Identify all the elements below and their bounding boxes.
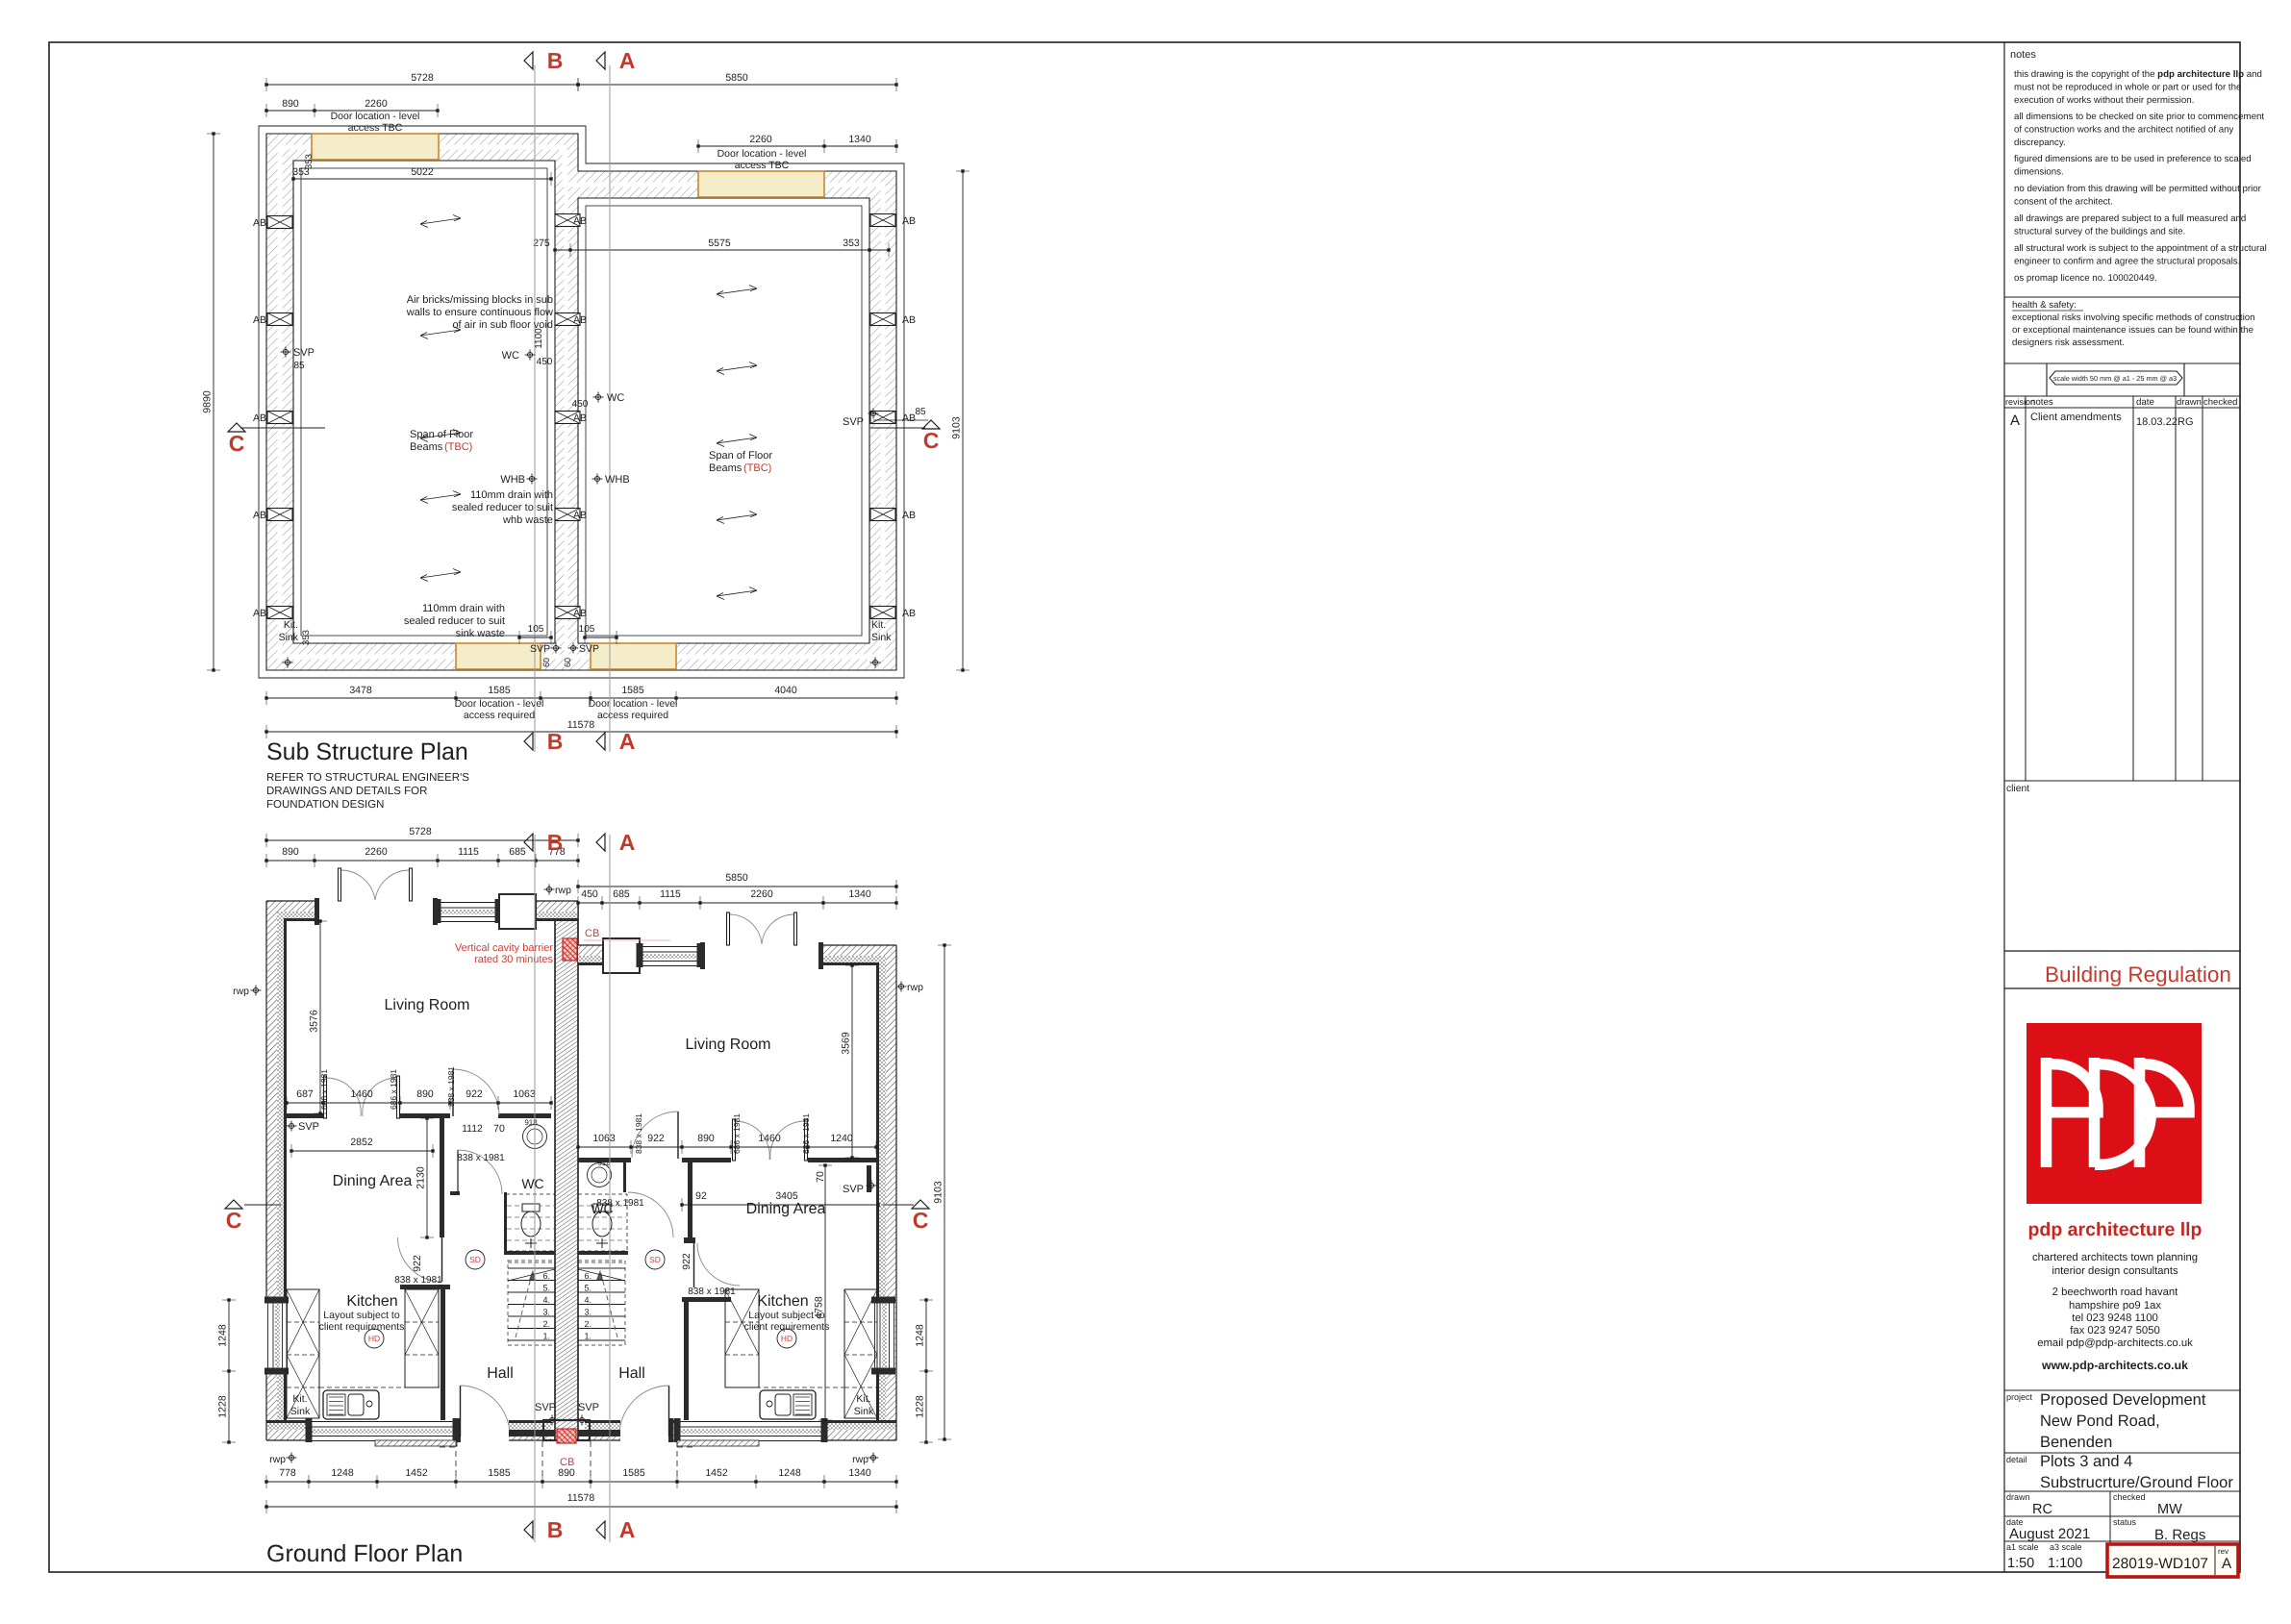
- svg-text:Door location - level: Door location - level: [331, 111, 420, 122]
- svg-text:838 x 1981: 838 x 1981: [394, 1275, 442, 1286]
- svg-text:687: 687: [296, 1088, 314, 1100]
- svg-text:1115: 1115: [660, 888, 681, 900]
- svg-text:Kitchen: Kitchen: [757, 1293, 808, 1310]
- svg-text:2260: 2260: [749, 134, 772, 145]
- svg-text:WC: WC: [521, 1176, 543, 1191]
- svg-text:Proposed Development: Proposed Development: [2040, 1391, 2206, 1409]
- svg-text:3.: 3.: [584, 1308, 592, 1317]
- svg-text:922: 922: [412, 1255, 423, 1272]
- svg-text:105: 105: [579, 624, 595, 635]
- svg-text:5.: 5.: [584, 1284, 592, 1293]
- svg-text:838 x 1981: 838 x 1981: [688, 1287, 736, 1297]
- svg-text:2.: 2.: [542, 1319, 550, 1329]
- svg-text:1248: 1248: [331, 1467, 354, 1479]
- svg-text:1585: 1585: [488, 1467, 511, 1479]
- svg-text:AB: AB: [573, 412, 587, 424]
- svg-text:Kitchen: Kitchen: [346, 1293, 397, 1310]
- svg-text:a1 scale: a1 scale: [2006, 1542, 2039, 1552]
- svg-text:1585: 1585: [621, 685, 644, 696]
- svg-text:AB: AB: [902, 215, 916, 227]
- svg-text:date: date: [2136, 397, 2154, 408]
- svg-text:105: 105: [528, 624, 544, 635]
- svg-text:70: 70: [493, 1123, 505, 1135]
- svg-text:A: A: [2010, 412, 2020, 429]
- svg-text:Building Regulation: Building Regulation: [2045, 962, 2231, 987]
- svg-text:685: 685: [613, 888, 630, 900]
- svg-text:Living Room: Living Room: [385, 997, 470, 1013]
- svg-text:1115: 1115: [458, 846, 479, 858]
- svg-text:4040: 4040: [774, 685, 797, 696]
- svg-text:5728: 5728: [409, 826, 432, 837]
- svg-text:838 x 1981: 838 x 1981: [446, 1066, 456, 1107]
- svg-text:checked: checked: [2203, 397, 2237, 408]
- svg-text:1248: 1248: [217, 1324, 229, 1347]
- svg-text:rwp: rwp: [233, 986, 249, 997]
- svg-text:AB: AB: [573, 510, 587, 521]
- svg-text:sealed reducer to suit: sealed reducer to suit: [404, 615, 505, 627]
- svg-text:C: C: [229, 431, 245, 456]
- svg-text:rwp: rwp: [555, 885, 571, 896]
- svg-text:Dining Area: Dining Area: [746, 1201, 826, 1217]
- svg-text:Kit.: Kit.: [292, 1393, 307, 1405]
- svg-text:918: 918: [597, 1159, 611, 1167]
- svg-text:838 x 1981: 838 x 1981: [634, 1113, 643, 1154]
- svg-text:SD: SD: [649, 1255, 661, 1264]
- svg-text:890: 890: [282, 98, 299, 110]
- svg-text:AB: AB: [253, 217, 266, 229]
- svg-text:engineer to confirm and agree: engineer to confirm and agree the struct…: [2014, 257, 2240, 267]
- svg-text:60: 60: [563, 658, 572, 667]
- svg-text:3405: 3405: [775, 1190, 798, 1202]
- svg-text:686 x 1981: 686 x 1981: [389, 1069, 398, 1110]
- svg-text:685: 685: [509, 846, 526, 858]
- svg-text:scale width 50 mm @ a1 - 25: scale width 50 mm @ a1 - 25 mm @ a3: [2053, 374, 2177, 383]
- svg-text:fax 023 9247 5050: fax 023 9247 5050: [2070, 1325, 2160, 1337]
- svg-text:1585: 1585: [488, 685, 511, 696]
- svg-text:922: 922: [647, 1133, 665, 1144]
- svg-text:1452: 1452: [405, 1467, 428, 1479]
- svg-text:Kit.: Kit.: [871, 619, 886, 631]
- svg-text:email pdp@pdp-architects.co.u: email pdp@pdp-architects.co.uk: [2037, 1337, 2193, 1349]
- svg-text:AB: AB: [902, 314, 916, 326]
- svg-text:discrepancy.: discrepancy.: [2014, 137, 2066, 148]
- svg-text:detail: detail: [2006, 1455, 2027, 1464]
- svg-text:Hall: Hall: [618, 1365, 645, 1382]
- svg-text:RC: RC: [2032, 1502, 2052, 1517]
- svg-text:rwp: rwp: [907, 982, 923, 993]
- svg-text:1460: 1460: [758, 1133, 781, 1144]
- svg-text:SD: SD: [469, 1255, 481, 1264]
- svg-text:Sink: Sink: [279, 632, 299, 643]
- svg-text:Plots 3 and 4: Plots 3 and 4: [2040, 1453, 2132, 1470]
- svg-text:no deviation from this drawing: no deviation from this drawing will be p…: [2014, 184, 2262, 194]
- svg-text:353: 353: [301, 630, 312, 645]
- svg-text:AB: AB: [253, 314, 266, 326]
- svg-text:drawn: drawn: [2177, 397, 2202, 408]
- svg-text:11578: 11578: [567, 719, 595, 731]
- svg-text:Sink: Sink: [854, 1406, 874, 1417]
- svg-text:778: 778: [279, 1467, 296, 1479]
- svg-text:1063: 1063: [513, 1088, 536, 1100]
- svg-text:890: 890: [416, 1088, 434, 1100]
- svg-text:918: 918: [524, 1118, 538, 1127]
- svg-text:os promap licence no. 10002044: os promap licence no. 100020449.: [2014, 273, 2157, 284]
- svg-text:project: project: [2006, 1392, 2033, 1402]
- svg-text:1452: 1452: [705, 1467, 728, 1479]
- svg-text:353: 353: [843, 237, 860, 249]
- svg-text:1063: 1063: [592, 1133, 616, 1144]
- svg-text:Kit.: Kit.: [284, 619, 298, 631]
- svg-text:3569: 3569: [841, 1032, 852, 1055]
- svg-text:3.: 3.: [542, 1308, 550, 1317]
- svg-text:a3 scale: a3 scale: [2050, 1542, 2082, 1552]
- svg-text:all dimensions to be checked o: all dimensions to be checked on site pri…: [2014, 112, 2264, 122]
- svg-text:B: B: [547, 729, 564, 754]
- svg-text:rwp: rwp: [852, 1454, 869, 1465]
- svg-text:686 x 1981: 686 x 1981: [319, 1069, 329, 1110]
- svg-text:whb waste: whb waste: [502, 514, 553, 526]
- svg-text:AB: AB: [253, 510, 266, 521]
- svg-text:pdp architecture llp: pdp architecture llp: [2028, 1219, 2203, 1240]
- svg-text:Door location - level: Door location - level: [455, 698, 544, 710]
- svg-text:AB: AB: [253, 412, 266, 424]
- svg-text:this drawing is the copyright: this drawing is the copyright of the pdp…: [2014, 69, 2262, 80]
- svg-text:must not be reproduced in whol: must not be reproduced in whole or part …: [2014, 83, 2241, 93]
- svg-text:9890: 9890: [202, 390, 214, 413]
- svg-text:health & safety:: health & safety:: [2012, 300, 2077, 311]
- svg-text:85: 85: [293, 361, 305, 371]
- svg-text:1340: 1340: [848, 1467, 871, 1479]
- svg-text:5575: 5575: [708, 237, 731, 249]
- svg-text:4758: 4758: [814, 1296, 825, 1319]
- svg-text:rwp: rwp: [269, 1454, 286, 1465]
- svg-text:Vertical cavity barrier: Vertical cavity barrier: [455, 942, 553, 954]
- svg-text:tel 023 9248 1100: tel 023 9248 1100: [2072, 1312, 2158, 1324]
- svg-text:890: 890: [558, 1467, 575, 1479]
- svg-text:Span of Floor: Span of Floor: [410, 429, 473, 440]
- svg-text:Sub Structure Plan: Sub Structure Plan: [266, 738, 468, 765]
- svg-text:MW: MW: [2157, 1502, 2182, 1517]
- svg-text:SVP: SVP: [535, 1402, 556, 1413]
- svg-text:all structural work is subject: all structural work is subject to the ap…: [2014, 243, 2267, 254]
- svg-text:110mm drain with: 110mm drain with: [422, 603, 505, 614]
- svg-text:3576: 3576: [309, 1010, 320, 1033]
- svg-text:922: 922: [681, 1253, 692, 1270]
- svg-text:client requirements: client requirements: [744, 1321, 830, 1333]
- svg-text:2130: 2130: [415, 1166, 427, 1189]
- svg-text:Door location - level: Door location - level: [718, 148, 807, 160]
- svg-text:28019-WD107: 28019-WD107: [2112, 1556, 2208, 1572]
- svg-text:DRAWINGS AND DETAILS FOR: DRAWINGS AND DETAILS FOR: [266, 786, 427, 797]
- svg-text:890: 890: [282, 846, 299, 858]
- svg-text:2260: 2260: [365, 98, 388, 110]
- svg-text:structural survey of the build: structural survey of the buildings and s…: [2014, 227, 2185, 237]
- svg-text:New Pond Road,: New Pond Road,: [2040, 1412, 2160, 1430]
- svg-text:5850: 5850: [725, 872, 748, 884]
- svg-text:sink waste: sink waste: [456, 628, 505, 639]
- svg-text:2260: 2260: [365, 846, 388, 858]
- svg-text:Beams: Beams: [709, 462, 743, 474]
- svg-text:Client amendments: Client amendments: [2030, 412, 2122, 423]
- svg-text:rev: rev: [2218, 1547, 2228, 1556]
- svg-text:sealed reducer to suit: sealed reducer to suit: [452, 502, 553, 513]
- svg-text:FOUNDATION DESIGN: FOUNDATION DESIGN: [266, 799, 384, 811]
- svg-text:110mm drain with: 110mm drain with: [470, 489, 553, 501]
- svg-text:Sink: Sink: [871, 632, 892, 643]
- svg-text:1248: 1248: [915, 1324, 926, 1347]
- svg-text:execution of works without the: execution of works without their permiss…: [2014, 95, 2194, 106]
- svg-text:2 beechworth road havant: 2 beechworth road havant: [2052, 1287, 2178, 1298]
- svg-text:686 x 1981: 686 x 1981: [732, 1113, 742, 1154]
- svg-text:www.pdp-architects.co.uk: www.pdp-architects.co.uk: [2041, 1359, 2188, 1372]
- svg-text:SVP: SVP: [293, 347, 315, 359]
- svg-text:AB: AB: [573, 215, 587, 227]
- svg-text:838 x 1981: 838 x 1981: [596, 1198, 644, 1209]
- svg-text:B: B: [547, 48, 564, 73]
- svg-text:1340: 1340: [848, 134, 871, 145]
- svg-text:access required: access required: [597, 710, 668, 721]
- svg-text:4.: 4.: [584, 1295, 592, 1305]
- svg-text:access TBC: access TBC: [735, 160, 790, 171]
- svg-text:or exceptional maintenance iss: or exceptional maintenance issues can be…: [2012, 325, 2253, 336]
- svg-text:SVP: SVP: [578, 1402, 599, 1413]
- svg-text:designers risk assessment.: designers risk assessment.: [2012, 337, 2125, 348]
- svg-text:WC: WC: [607, 392, 624, 404]
- svg-text:checked: checked: [2113, 1492, 2146, 1502]
- svg-text:Air bricks/missing blocks in s: Air bricks/missing blocks in sub: [407, 294, 553, 306]
- svg-text:B: B: [547, 1517, 564, 1542]
- svg-text:450: 450: [581, 888, 598, 900]
- svg-text:August 2021: August 2021: [2009, 1526, 2090, 1542]
- svg-text:all drawings are prepared subj: all drawings are prepared subject to a f…: [2014, 213, 2246, 224]
- svg-text:status: status: [2113, 1517, 2137, 1527]
- svg-text:chartered architects town pla: chartered architects town planning: [2032, 1252, 2198, 1263]
- svg-text:AB: AB: [573, 314, 587, 326]
- svg-text:of construction works and the: of construction works and the architect …: [2014, 125, 2233, 136]
- svg-text:Substrucrture/Ground Floor: Substrucrture/Ground Floor: [2040, 1474, 2233, 1491]
- svg-text:1340: 1340: [848, 888, 871, 900]
- svg-text:HD: HD: [781, 1334, 793, 1343]
- svg-text:Ground Floor Plan: Ground Floor Plan: [266, 1540, 463, 1567]
- svg-text:353: 353: [304, 154, 315, 169]
- svg-text:1:100: 1:100: [2048, 1556, 2082, 1571]
- svg-text:2852: 2852: [350, 1137, 373, 1148]
- svg-text:AB: AB: [573, 608, 587, 619]
- svg-text:AB: AB: [902, 412, 916, 424]
- svg-text:70: 70: [815, 1171, 826, 1183]
- svg-text:(TBC): (TBC): [444, 441, 472, 453]
- svg-text:1.: 1.: [542, 1332, 550, 1341]
- svg-text:hampshire po9 1ax: hampshire po9 1ax: [2069, 1300, 2161, 1312]
- svg-text:450: 450: [537, 357, 553, 367]
- svg-text:AB: AB: [902, 510, 916, 521]
- svg-text:1460: 1460: [350, 1088, 373, 1100]
- svg-text:3478: 3478: [349, 685, 372, 696]
- svg-text:1.: 1.: [584, 1332, 592, 1341]
- svg-text:11578: 11578: [567, 1492, 595, 1504]
- svg-text:B: B: [547, 830, 564, 855]
- svg-text:1:50: 1:50: [2007, 1556, 2034, 1571]
- svg-text:A: A: [619, 1517, 636, 1542]
- svg-text:access TBC: access TBC: [348, 122, 403, 134]
- svg-text:C: C: [226, 1208, 242, 1233]
- svg-text:890: 890: [697, 1133, 715, 1144]
- svg-text:access required: access required: [464, 710, 535, 721]
- svg-text:Beams: Beams: [410, 441, 443, 453]
- svg-text:SVP: SVP: [843, 1184, 864, 1195]
- svg-text:client: client: [2006, 784, 2029, 794]
- svg-text:WHB: WHB: [605, 474, 630, 486]
- svg-text:85: 85: [915, 407, 926, 417]
- svg-text:922: 922: [466, 1088, 483, 1100]
- svg-text:60: 60: [541, 658, 551, 667]
- svg-text:SVP: SVP: [843, 416, 864, 428]
- svg-text:Living Room: Living Room: [686, 1037, 771, 1053]
- svg-text:CB: CB: [585, 928, 599, 939]
- svg-text:838 x 1981: 838 x 1981: [457, 1153, 505, 1163]
- svg-text:SVP: SVP: [298, 1121, 319, 1133]
- svg-text:HD: HD: [368, 1334, 380, 1343]
- svg-text:5.: 5.: [542, 1284, 550, 1293]
- svg-text:1240: 1240: [830, 1133, 853, 1144]
- svg-text:(TBC): (TBC): [743, 462, 771, 474]
- svg-text:A: A: [619, 830, 636, 855]
- svg-text:consent of the architect.: consent of the architect.: [2014, 197, 2113, 208]
- svg-text:WC: WC: [502, 350, 519, 362]
- svg-text:Span of Floor: Span of Floor: [709, 450, 772, 462]
- svg-text:C: C: [913, 1208, 929, 1233]
- svg-text:Dining Area: Dining Area: [333, 1173, 413, 1189]
- svg-text:9103: 9103: [933, 1181, 944, 1204]
- svg-text:2260: 2260: [750, 888, 773, 900]
- svg-text:notes: notes: [2030, 397, 2053, 408]
- svg-text:5022: 5022: [411, 166, 434, 178]
- svg-text:4.: 4.: [542, 1295, 550, 1305]
- svg-text:A: A: [2222, 1556, 2232, 1572]
- svg-text:2.: 2.: [584, 1319, 592, 1329]
- svg-text:1228: 1228: [217, 1395, 229, 1418]
- svg-text:1585: 1585: [622, 1467, 645, 1479]
- svg-text:rated 30 minutes: rated 30 minutes: [474, 954, 553, 965]
- svg-text:WHB: WHB: [500, 474, 525, 486]
- svg-text:walls to ensure continuous flo: walls to ensure continuous flow: [406, 307, 553, 318]
- svg-text:A: A: [619, 48, 636, 73]
- svg-text:REFER TO STRUCTURAL ENGINEER'S: REFER TO STRUCTURAL ENGINEER'S: [266, 772, 469, 784]
- svg-text:92: 92: [695, 1190, 707, 1202]
- svg-text:figured dimensions are to be u: figured dimensions are to be used in pre…: [2014, 154, 2252, 164]
- svg-text:5728: 5728: [411, 72, 434, 84]
- svg-text:RG: RG: [2178, 416, 2194, 428]
- svg-text:Benenden: Benenden: [2040, 1434, 2112, 1451]
- svg-text:SVP: SVP: [579, 643, 599, 655]
- svg-text:450: 450: [572, 399, 589, 410]
- svg-text:SVP: SVP: [530, 643, 550, 655]
- svg-text:6.: 6.: [542, 1271, 550, 1281]
- svg-text:275: 275: [533, 237, 550, 249]
- svg-text:Kit.: Kit.: [856, 1393, 870, 1405]
- svg-text:1112: 1112: [462, 1123, 483, 1135]
- svg-text:AB: AB: [253, 608, 266, 619]
- svg-text:9103: 9103: [951, 416, 963, 439]
- svg-text:Door location - level: Door location - level: [589, 698, 678, 710]
- svg-text:1248: 1248: [778, 1467, 801, 1479]
- svg-text:686 x 1981: 686 x 1981: [801, 1113, 811, 1154]
- svg-text:client requirements: client requirements: [319, 1321, 405, 1333]
- svg-text:Hall: Hall: [487, 1365, 514, 1382]
- svg-text:AB: AB: [902, 608, 916, 619]
- svg-text:Layout subject to: Layout subject to: [323, 1310, 400, 1321]
- svg-text:5850: 5850: [725, 72, 748, 84]
- svg-text:interior design consultants: interior design consultants: [2052, 1265, 2178, 1277]
- svg-text:1100: 1100: [534, 328, 544, 349]
- svg-text:exceptional risks involving sp: exceptional risks involving specific met…: [2012, 312, 2255, 323]
- svg-text:18.03.22: 18.03.22: [2136, 416, 2178, 428]
- svg-text:dimensions.: dimensions.: [2014, 167, 2064, 178]
- svg-text:A: A: [619, 729, 636, 754]
- svg-text:C: C: [923, 428, 940, 453]
- svg-text:drawn: drawn: [2006, 1492, 2030, 1502]
- svg-text:1228: 1228: [915, 1395, 926, 1418]
- svg-text:notes: notes: [2010, 49, 2036, 61]
- svg-text:Sink: Sink: [290, 1406, 311, 1417]
